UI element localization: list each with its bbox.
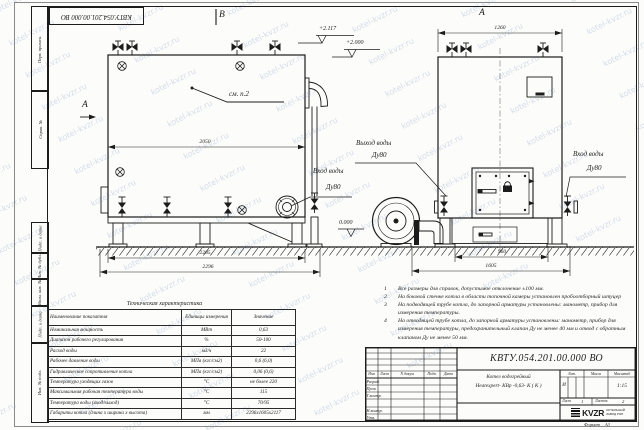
inlet-a-label-line1: Вход воды [573, 150, 603, 158]
tech-characteristics: Техническая характеристика Наименование … [47, 301, 282, 420]
dim-2050 [108, 145, 305, 149]
inlet-valve-icon [564, 196, 578, 216]
inlet-a-label-line2: Ду80 [587, 164, 602, 172]
note-number: 1 [381, 285, 398, 293]
cell-unit: °С [182, 398, 232, 408]
elevation-mid: +2.000 [346, 40, 364, 46]
lifting-eye-icon [116, 62, 247, 215]
sheets-label: Листов [595, 399, 607, 403]
cell-value: 0,6 (6,0) [232, 357, 296, 367]
view-a-label: А [479, 8, 485, 18]
scale-value: 1:15 [608, 383, 636, 389]
sheet-label: Лист [562, 399, 571, 403]
col-ndoc: N докум. [391, 372, 424, 376]
row-razrab: Разраб. [367, 379, 380, 384]
cell-name: Рабочее давление воды [48, 357, 182, 367]
elevation-ground: 0.000 [339, 220, 353, 226]
tech-row: Максимальная рабочая температура воды°С1… [48, 388, 296, 398]
boiler-front-view [373, 29, 578, 276]
format-label: Формат [584, 422, 600, 427]
note-number: 4 [381, 317, 398, 341]
cell-unit: °С [182, 377, 232, 387]
header-value: Значение [232, 310, 296, 326]
manufacturer-logo: KVZR КОТЕЛЬНЫЙ ЗАВОД РЭП [561, 405, 635, 420]
furnace-door [472, 168, 535, 218]
outlet-valve-icon [435, 196, 449, 216]
header-unit: Единицы измерения [182, 310, 232, 326]
tech-row: Гидравлическое сопротивление котлаМПа (к… [48, 367, 296, 377]
lit-header: Лит. [560, 372, 584, 376]
lit-value: И [560, 383, 568, 388]
note-item: 2На боковой стенке котла в области топоч… [381, 293, 635, 301]
access-hatch [527, 77, 552, 97]
format-note: Формат А3 [584, 422, 610, 427]
view-marks [80, 9, 216, 120]
note-text: На отводящей трубе котла, до запорной ар… [398, 317, 635, 341]
cell-name: Расход воды [48, 346, 182, 356]
mass-header: Масса [584, 372, 608, 376]
title-block: КВТУ.054.201.00.000 ВО Изм Лист N докум.… [365, 347, 636, 421]
tech-table-title: Техническая характеристика [47, 301, 282, 307]
product-name-line1: Котел водогрейный [458, 373, 559, 382]
cell-value: 50-100 [232, 336, 296, 346]
logo-sub-line2: ЗАВОД РЭП [606, 413, 625, 416]
product-name-line2: Heatexpert- КВр -0,63- К ( К ) [458, 382, 559, 391]
tech-table: Наименование показателя Единицы измерени… [47, 309, 296, 420]
cell-unit: МВт [182, 326, 232, 336]
dim-b-base: 2285 [165, 250, 245, 256]
kvzr-logo-text: KVZR [582, 408, 604, 418]
cell-name: Габариты котла (длина х ширина х высота) [48, 409, 182, 419]
drain-valve-icon [118, 197, 232, 217]
cell-unit: °С [182, 388, 232, 398]
cell-value: 2296х1605х2117 [232, 409, 296, 419]
dim-b-overall: 2296 [168, 264, 248, 270]
row-utv: Утв. [367, 415, 376, 420]
note-text: Все размеры для справок, допустимое откл… [398, 285, 635, 293]
cell-unit: % [182, 336, 232, 346]
inlet-pipe-valve-icon [307, 193, 322, 247]
tech-row: Номинальная мощностьМВт0,63 [48, 326, 296, 336]
note-number: 3 [381, 301, 398, 317]
sheets-value: 2 [622, 399, 624, 404]
dim-a-overall: 1605 [461, 263, 521, 269]
notes-block: 1Все размеры для справок, допустимое отк… [381, 285, 635, 342]
side-fitting [101, 187, 108, 213]
outlet-label-line2: Ду80 [372, 151, 387, 159]
callout-see-p2: см. п.2 [229, 90, 249, 98]
flue-nozzle [305, 78, 328, 196]
note-item: 4На отводящей трубе котла, до запорной а… [381, 317, 635, 341]
cell-name: Температура уходящих газов [48, 377, 182, 387]
support-frame [108, 217, 306, 247]
lock-icon [503, 182, 512, 192]
cell-unit: мм [182, 409, 232, 419]
cell-unit: м3/ч [182, 346, 232, 356]
kvzr-logo-subtext: КОТЕЛЬНЫЙ ЗАВОД РЭП [606, 409, 625, 416]
cell-unit: МПа (кгс/см2) [182, 367, 232, 377]
tech-row: Диапазон рабочего регулирования%50-100 [48, 336, 296, 346]
cell-unit: МПа (кгс/см2) [182, 357, 232, 367]
format-value: А3 [605, 422, 610, 427]
cell-name: Температура воды (вход/выход) [48, 398, 182, 408]
cell-value: не более 220 [232, 377, 296, 387]
dim-a-base: 960 [472, 249, 532, 255]
note-item: 3На подводящей трубе котла, до запорной … [381, 301, 635, 317]
sheet-value: 1 [581, 399, 583, 404]
boiler-side-view [100, 41, 328, 277]
cell-value: 0,06 (0,6) [232, 367, 296, 377]
cell-value: 0,63 [232, 326, 296, 336]
tech-row: Расход водым3/ч22 [48, 346, 296, 356]
note-text: На подводящей трубе котла, до запорной а… [398, 301, 635, 317]
tech-row: Температура воды (вход/выход)°С70/95 [48, 398, 296, 408]
cell-value: 22 [232, 346, 296, 356]
inlet-b-label-line1: Вход воды [313, 167, 343, 175]
col-list: Лист [378, 372, 391, 376]
product-name: Котел водогрейный Heatexpert- КВр -0,63-… [458, 373, 559, 390]
note-number: 2 [381, 293, 398, 301]
section-arrow-label: А [82, 100, 88, 110]
safety-valve-icon [447, 43, 549, 53]
doc-number: КВТУ.054.201.00.000 ВО [457, 347, 636, 370]
note-text: На боковой стенке котла в области топочн… [398, 293, 635, 301]
kvzr-logo-icon [571, 408, 580, 417]
row-tkontr: Т.контр. [367, 393, 382, 398]
scale-header: Масштаб [608, 372, 636, 376]
elevation-marks [298, 36, 380, 237]
inlet-b-label-line2: Ду80 [326, 183, 341, 191]
cell-value: 70/95 [232, 398, 296, 408]
cell-value: 115 [232, 388, 296, 398]
base-frame [435, 218, 567, 247]
blower-fan [373, 198, 420, 248]
header-name: Наименование показателя [48, 310, 182, 326]
door-handle [478, 190, 496, 194]
elevation-top: +2.117 [319, 26, 336, 32]
row-nkontr: Н.контр. [367, 408, 383, 413]
cell-name: Максимальная рабочая температура воды [48, 388, 182, 398]
tech-row: Рабочее давление водыМПа (кгс/см2)0,6 (6… [48, 357, 296, 367]
cell-name: Гидравлическое сопротивление котла [48, 367, 182, 377]
note-item: 1Все размеры для справок, допустимое отк… [381, 285, 635, 293]
col-data: Дата [440, 372, 457, 376]
drawing-sheet: kotel-kvzr.ru kotel-kvzr.ru kotel-kvzr.r… [0, 0, 644, 430]
tech-row: Габариты котла (длина х ширина х высота)… [48, 409, 296, 419]
tech-row: Температура уходящих газов°Сне более 220 [48, 377, 296, 387]
safety-valve-icon [113, 41, 281, 51]
row-prov: Пров. [367, 386, 377, 391]
dim-b-inner: 2050 [172, 139, 238, 145]
tech-table-header: Наименование показателя Единицы измерени… [48, 310, 296, 326]
view-b-label: В [219, 10, 225, 20]
outlet-label-line1: Выход воды [356, 139, 391, 147]
dim-a-top: 1260 [470, 25, 530, 31]
col-izm: Изм [365, 372, 378, 376]
cell-name: Диапазон рабочего регулирования [48, 336, 182, 346]
col-podp: Подп. [424, 372, 440, 376]
hinge-icon [529, 179, 535, 205]
cell-name: Номинальная мощность [48, 326, 182, 336]
water-inlet-flange [276, 196, 298, 218]
air-duct-elbow [414, 220, 443, 245]
